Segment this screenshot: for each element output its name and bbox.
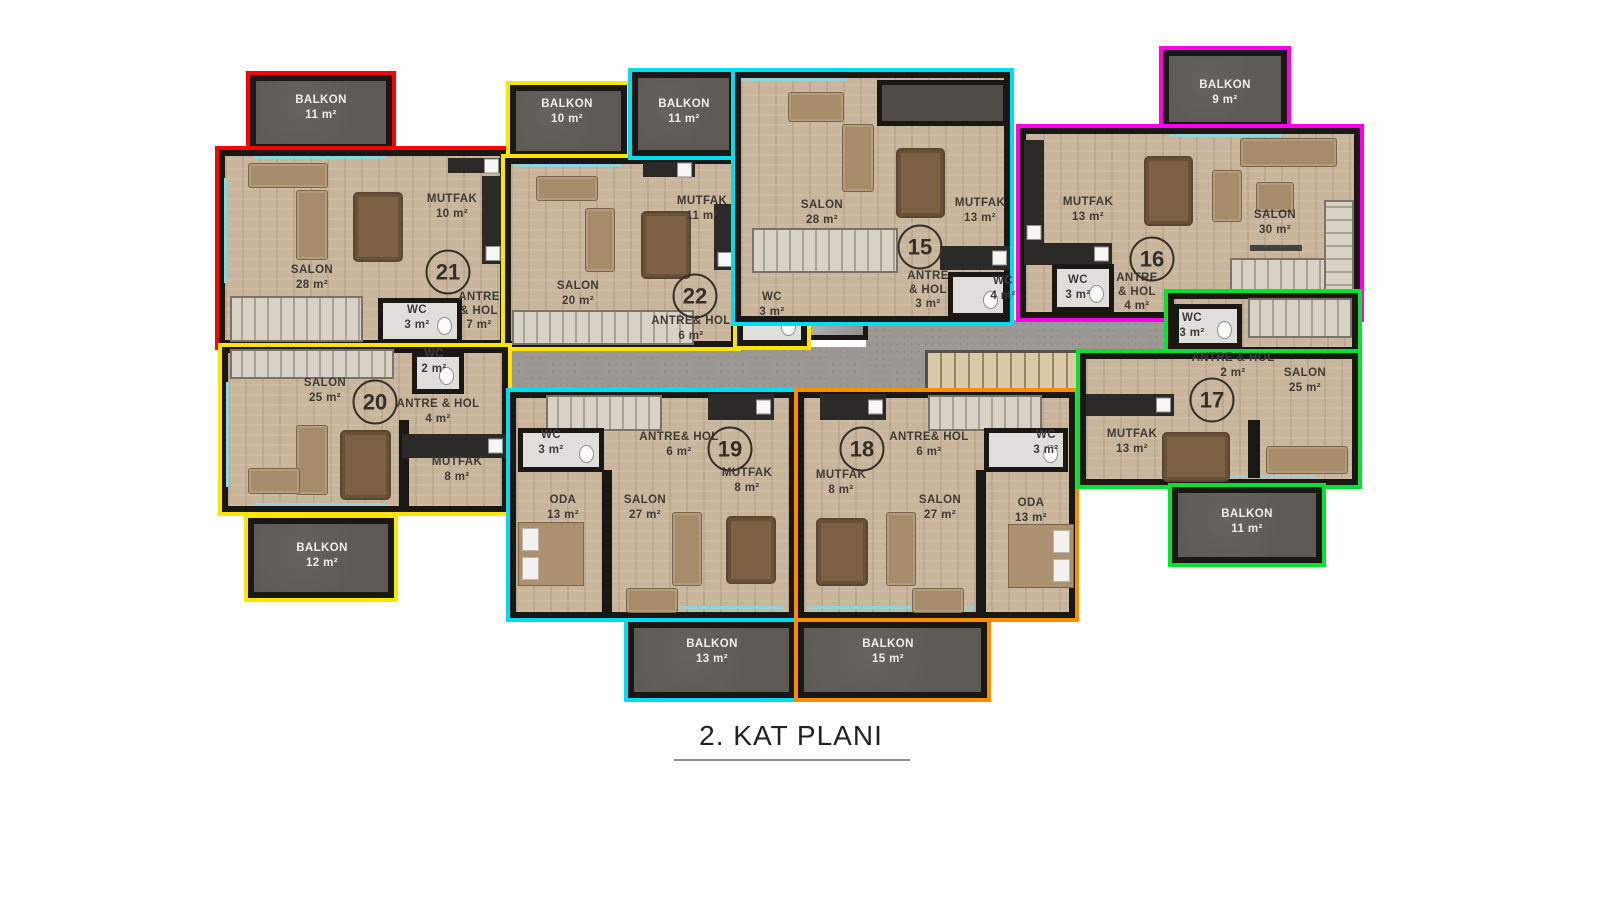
partition-wall (976, 470, 986, 616)
dining-table (1144, 156, 1193, 226)
tv-unit (1250, 245, 1302, 251)
room-label-antre-hol: ANTRE & HOL4 m² (397, 397, 480, 427)
dining-table (340, 430, 391, 500)
apartment-number: 19 (708, 427, 753, 472)
room-label-salon: SALON25 m² (304, 376, 346, 406)
kitchen-counter (1086, 394, 1174, 416)
sofa (248, 468, 300, 494)
room-label-wc: WC3 m² (1065, 273, 1090, 303)
dining-table (1162, 432, 1230, 482)
room-label-wc: WC3 m² (759, 290, 784, 320)
room-label-mutfak: MUTFAK13 m² (1063, 195, 1113, 225)
room-label-balkon: BALKON15 m² (862, 637, 914, 667)
kitchen-counter (708, 394, 774, 420)
room-label-antre-hol: ANTRE& HOL6 m² (889, 430, 968, 460)
room-label-wc: WC2 m² (421, 347, 446, 377)
sofa (626, 588, 678, 613)
apartment-number: 21 (426, 250, 471, 295)
room-label-wc: WC4 m² (990, 274, 1015, 304)
dining-table (353, 192, 403, 262)
kitchen-counter (940, 246, 1010, 270)
interior-stairs (1248, 298, 1352, 338)
sofa (1266, 446, 1348, 474)
partition-wall (602, 470, 612, 616)
interior-stairs (752, 228, 898, 273)
room-label-antre-hol: ANTRE & HOL7 m² (454, 290, 504, 332)
window-strip (224, 178, 227, 283)
room-label-salon: SALON28 m² (801, 198, 843, 228)
floor-plan-canvas: ASANSÖR BALKON11 m² SALON28 m² MUTFAK10 … (0, 0, 1600, 899)
plan-title: 2. KAT PLANI (699, 720, 883, 752)
kitchen-counter (482, 176, 504, 264)
room-label-salon: SALON27 m² (624, 493, 666, 523)
room-label-salon: SALON28 m² (291, 263, 333, 293)
room-label-antre-hol: ANTRE& HOL6 m² (651, 314, 730, 344)
sofa (672, 512, 702, 586)
sofa (296, 425, 328, 495)
window-strip (514, 164, 622, 167)
bed (1008, 524, 1074, 588)
roof-area (877, 80, 1008, 126)
window-strip (1170, 134, 1282, 137)
kitchen-counter (820, 394, 886, 420)
sofa (1212, 170, 1242, 222)
room-label-balkon: BALKON13 m² (686, 637, 738, 667)
interior-stairs (546, 395, 662, 431)
window-strip (741, 78, 847, 81)
room-label-mutfak: MUTFAK13 m² (955, 196, 1005, 226)
room-label-balkon: BALKON9 m² (1199, 78, 1251, 108)
room-label-balkon: BALKON11 m² (295, 93, 347, 123)
interior-stairs (928, 395, 1042, 431)
partition-wall (1248, 420, 1260, 478)
kitchen-counter (1024, 140, 1044, 243)
kitchen-counter (643, 162, 695, 177)
room-label-mutfak: MUTFAK13 m² (1107, 427, 1157, 457)
apartment-number: 20 (353, 380, 398, 425)
bed (518, 522, 584, 586)
room-label-salon: SALON30 m² (1254, 208, 1296, 238)
room-label-mutfak: MUTFAK8 m² (432, 455, 482, 485)
room-label-oda: ODA13 m² (547, 493, 579, 523)
apartment-number: 17 (1190, 378, 1235, 423)
sofa (536, 176, 598, 201)
room-label-wc: WC3 m² (1179, 311, 1204, 341)
dining-table (896, 148, 945, 218)
room-label-antre-hol: ANTRE & HOL3 m² (903, 269, 953, 311)
room-label-wc: WC3 m² (1033, 428, 1058, 458)
room-label-balkon: BALKON12 m² (296, 541, 348, 571)
room-label-wc: WC3 m² (404, 303, 429, 333)
sofa (788, 92, 844, 122)
room-label-salon: SALON25 m² (1284, 366, 1326, 396)
room-label-mutfak: MUTFAK11 m² (677, 194, 727, 224)
interior-stairs (230, 349, 394, 379)
window-strip (254, 503, 386, 506)
apartment-number: 15 (898, 225, 943, 270)
room-label-mutfak: MUTFAK10 m² (427, 192, 477, 222)
apartment-number: 22 (673, 274, 718, 319)
dining-table (726, 516, 776, 584)
sofa (842, 124, 874, 192)
room-label-balkon: BALKON11 m² (1221, 507, 1273, 537)
sofa (585, 208, 615, 272)
sofa (296, 190, 328, 260)
interior-stairs (230, 296, 363, 342)
dining-table (816, 518, 868, 586)
window-strip (254, 156, 386, 159)
sofa (248, 163, 328, 188)
room-label-oda: ODA13 m² (1015, 496, 1047, 526)
sofa (912, 588, 964, 613)
apartment-number: 18 (840, 427, 885, 472)
room-label-balkon: BALKON10 m² (541, 97, 593, 127)
kitchen-counter (448, 158, 502, 173)
room-label-antre-hol: ANTRE & HOL2 m² (1192, 351, 1275, 381)
title-underline (674, 759, 910, 761)
sofa (886, 512, 916, 586)
sofa (1240, 138, 1337, 167)
window-strip (226, 382, 229, 487)
room-label-salon: SALON27 m² (919, 493, 961, 523)
kitchen-counter (1024, 243, 1112, 265)
room-label-mutfak: MUTFAK8 m² (816, 468, 866, 498)
room-label-wc: WC3 m² (538, 428, 563, 458)
apartment-number: 16 (1130, 237, 1175, 282)
room-label-salon: SALON20 m² (557, 279, 599, 309)
room-label-balkon: BALKON11 m² (658, 97, 710, 127)
